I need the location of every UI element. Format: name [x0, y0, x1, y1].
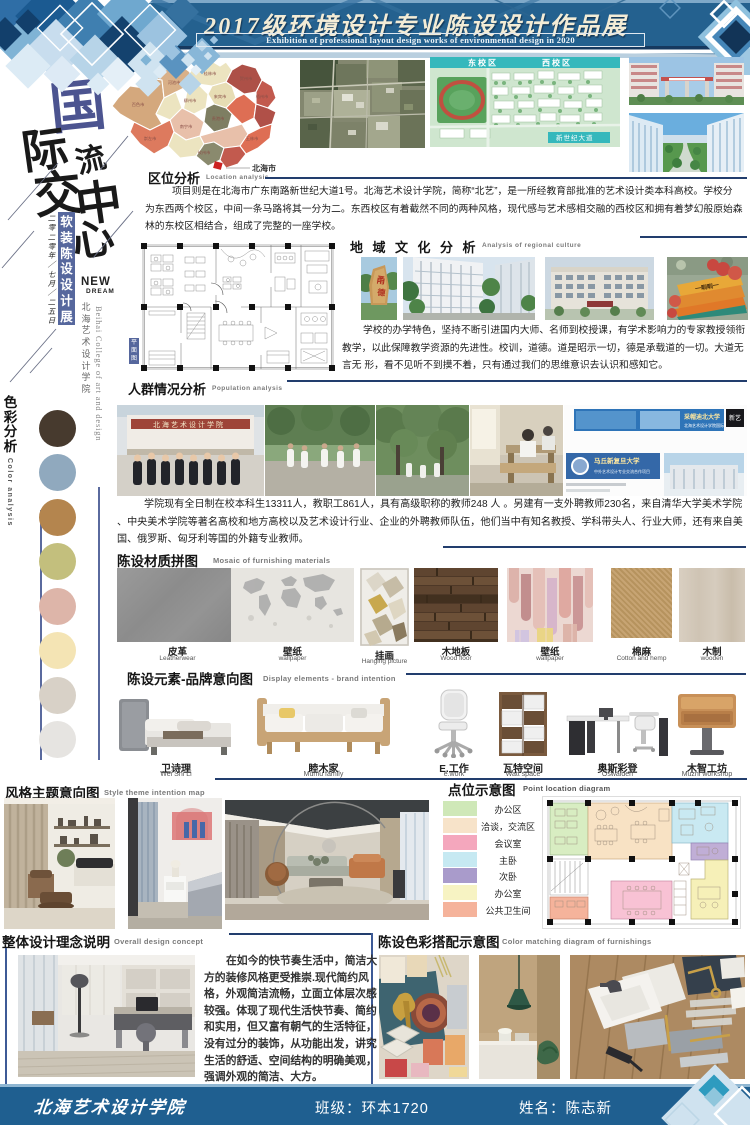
svg-text:甬: 甬: [376, 275, 386, 286]
svg-text:崇左市: 崇左市: [144, 135, 157, 142]
svg-text:德: 德: [377, 287, 386, 298]
svg-text:玉林市: 玉林市: [246, 135, 259, 142]
svg-text:采帽迪北大学: 采帽迪北大学: [684, 413, 720, 421]
svg-text:新艺: 新艺: [729, 414, 741, 422]
svg-text:北海艺术设计学院国际交流: 北海艺术设计学院国际交流: [684, 422, 732, 428]
svg-text:新世纪大道: 新世纪大道: [556, 133, 594, 142]
svg-text:贵港市: 贵港市: [212, 115, 225, 122]
svg-text:南宁市: 南宁市: [180, 123, 193, 130]
svg-text:东校区: 东校区: [468, 58, 498, 68]
svg-text:中外艺术设计专业交流合作项目: 中外艺术设计专业交流合作项目: [594, 468, 650, 474]
svg-text:马丘新复旦大学: 马丘新复旦大学: [594, 456, 640, 465]
svg-text:西校区: 西校区: [542, 58, 572, 68]
svg-text:北海艺术设计学院: 北海艺术设计学院: [153, 420, 225, 429]
svg-text:钦州市: 钦州市: [198, 149, 211, 156]
svg-text:北海市: 北海市: [252, 163, 276, 173]
